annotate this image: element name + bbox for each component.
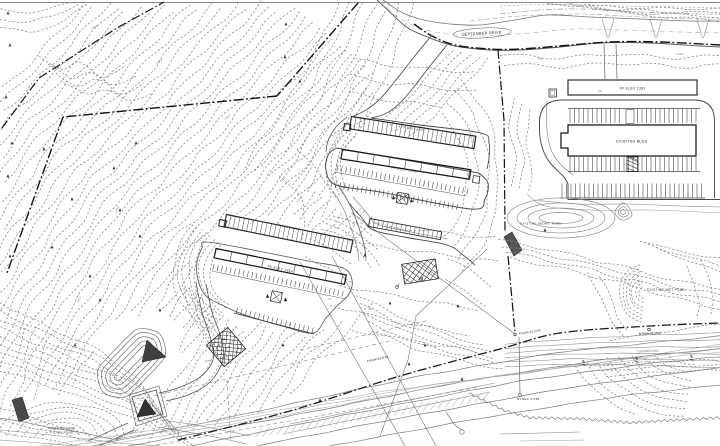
svg-text:FF ELEV 1363: FF ELEV 1363: [620, 87, 646, 91]
svg-text:EXISTING SAND: EXISTING SAND: [48, 426, 76, 430]
svg-text:EXISTING SEDMT. POND: EXISTING SEDMT. POND: [520, 222, 562, 226]
svg-text:56: 56: [598, 89, 602, 93]
svg-text:EXISTING BLDG: EXISTING BLDG: [616, 140, 647, 144]
svg-text:1350/8/12/AC: 1350/8/12/AC: [637, 349, 660, 354]
svg-text:FILTER POND: FILTER POND: [51, 431, 74, 435]
svg-text:NYNEX 27/38: NYNEX 27/38: [517, 397, 540, 401]
svg-text:PSNH/613/40: PSNH/613/40: [639, 331, 661, 336]
svg-text:1350: 1350: [204, 359, 212, 363]
svg-text:EXISTING WET POND: EXISTING WET POND: [647, 288, 685, 292]
svg-text:58: 58: [538, 57, 542, 61]
svg-text:1362: 1362: [676, 52, 684, 56]
svg-text:48: 48: [368, 307, 372, 311]
